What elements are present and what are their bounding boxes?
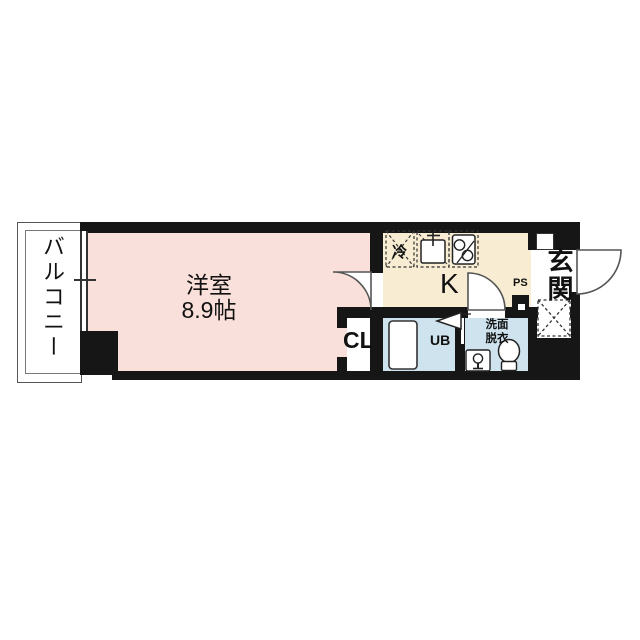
pipe-space-label: PS — [513, 277, 528, 289]
refrigerator-label: 冷 — [392, 241, 407, 262]
balcony-label: バルコニー — [36, 235, 68, 369]
floor-plan: バルコニー 洋室8.9帖 K CL UB 洗面脱衣 玄関 PS 冷 — [0, 0, 640, 640]
kitchen-label: K — [440, 268, 459, 300]
closet-label: CL — [343, 327, 374, 354]
stove-icon — [449, 231, 478, 267]
sink-icon — [417, 231, 449, 267]
bath-door-marker-icon — [437, 313, 461, 330]
door-swing-icon — [333, 272, 371, 310]
shoe-cabinet-icon — [538, 300, 570, 336]
washbasin-icon — [466, 350, 490, 371]
room-name: 洋室 — [186, 272, 232, 298]
washroom-label-line2: 脱衣 — [486, 333, 509, 345]
bathtub-icon — [389, 321, 417, 369]
door-swing-icon — [468, 273, 505, 310]
fixtures-layer — [0, 0, 640, 640]
washroom-label: 洗面脱衣 — [482, 319, 512, 346]
washroom-label-line1: 洗面 — [486, 319, 509, 331]
door-swing-icon — [577, 250, 621, 294]
unit-bath-label: UB — [430, 332, 450, 348]
entrance-label: 玄関 — [541, 247, 578, 305]
room-size: 8.9帖 — [182, 297, 237, 323]
main-room-label: 洋室8.9帖 — [149, 273, 269, 323]
